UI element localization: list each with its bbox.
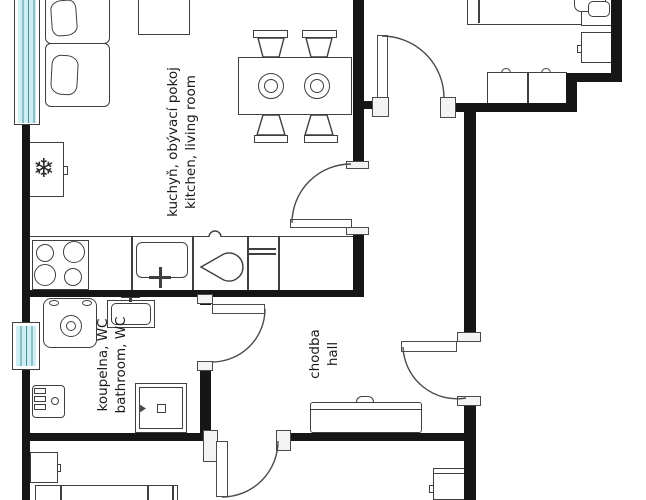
washer-knob — [49, 300, 59, 306]
washer-knob — [82, 300, 92, 306]
wall — [353, 0, 364, 164]
door-jamb — [197, 294, 213, 304]
nightstand — [30, 452, 58, 483]
door-leaf-bathroom — [212, 304, 265, 314]
kitchen-sink — [136, 242, 188, 278]
door-jamb — [457, 396, 481, 406]
door-leaf-kitchen — [290, 219, 352, 228]
sideboard-line — [311, 409, 421, 410]
dining-table — [238, 57, 352, 115]
toilet-button — [51, 397, 59, 405]
side-table — [138, 0, 190, 35]
room-label-en: hall — [325, 329, 343, 379]
chair-back — [253, 30, 288, 38]
wall — [464, 402, 476, 500]
bed-line — [478, 0, 480, 23]
wall — [28, 433, 205, 441]
counter-divider — [192, 237, 194, 291]
room-label-cs: koupelna, WC — [95, 317, 113, 414]
floor-plan: ❄ — [0, 0, 646, 500]
burner — [64, 268, 82, 286]
room-label-bathroom: koupelna, WC bathroom, WC — [95, 317, 131, 414]
door-leaf-bedroom-top — [377, 35, 388, 98]
toilet-detail — [34, 404, 46, 410]
sink-faucet-bar — [149, 276, 171, 279]
door-jamb — [372, 97, 389, 117]
washer-drum-center — [66, 321, 76, 331]
burner — [34, 264, 56, 286]
fridge-handle — [63, 166, 68, 175]
desk-chair-seat — [588, 1, 610, 17]
room-label-kitchen-living: kuchyň, obývací pokoj kitchen, living ro… — [165, 67, 201, 217]
bed-bottom — [35, 485, 178, 500]
burner — [36, 244, 54, 262]
door-jamb — [457, 332, 481, 342]
window — [16, 326, 36, 366]
room-label-en: kitchen, living room — [183, 67, 201, 217]
door-jamb — [440, 97, 456, 118]
door-jamb — [346, 161, 369, 169]
chair-back — [304, 135, 338, 143]
room-label-cs: chodba — [307, 329, 325, 379]
plate-center — [264, 79, 278, 93]
counter-divider — [131, 237, 133, 291]
hall-sideboard — [310, 402, 422, 433]
drawer-line — [249, 253, 276, 255]
wall — [611, 0, 622, 80]
drawer-line — [249, 248, 276, 250]
cabinet-line — [434, 473, 467, 474]
burner — [63, 241, 85, 263]
room-label-cs: kuchyň, obývací pokoj — [165, 67, 183, 217]
chair-back — [254, 135, 288, 143]
bed-line — [60, 486, 62, 500]
snowflake-icon: ❄ — [33, 156, 55, 182]
chair-back — [302, 30, 337, 38]
wardrobe-divider — [527, 73, 529, 103]
sofa-pillow — [50, 0, 78, 37]
door-jamb — [346, 227, 369, 235]
bed-line — [147, 486, 149, 500]
wall — [28, 290, 364, 297]
window — [18, 0, 36, 123]
door-jamb — [197, 361, 213, 371]
toilet-detail — [34, 396, 46, 402]
wall — [290, 433, 476, 441]
cabinet-handle — [577, 45, 582, 53]
sofa-pillow — [50, 54, 79, 95]
bed-top — [467, 0, 584, 25]
wall — [353, 230, 364, 297]
toilet-detail — [34, 388, 46, 394]
shower-drain — [157, 404, 166, 413]
plate-center — [310, 79, 324, 93]
wall — [464, 110, 476, 336]
wall — [200, 362, 211, 433]
bed-line — [172, 486, 174, 500]
nightstand-handle — [57, 464, 61, 472]
counter-divider — [278, 237, 280, 291]
door-leaf-room-right — [401, 341, 457, 352]
counter-divider — [247, 237, 249, 291]
room-label-en: bathroom, WC — [113, 317, 131, 414]
door-leaf-bedroom-bottom — [216, 441, 228, 497]
cabinet-handle — [429, 485, 434, 493]
cabinet — [581, 32, 612, 63]
door-jamb — [276, 430, 291, 451]
room-label-hall: chodba hall — [307, 329, 343, 379]
